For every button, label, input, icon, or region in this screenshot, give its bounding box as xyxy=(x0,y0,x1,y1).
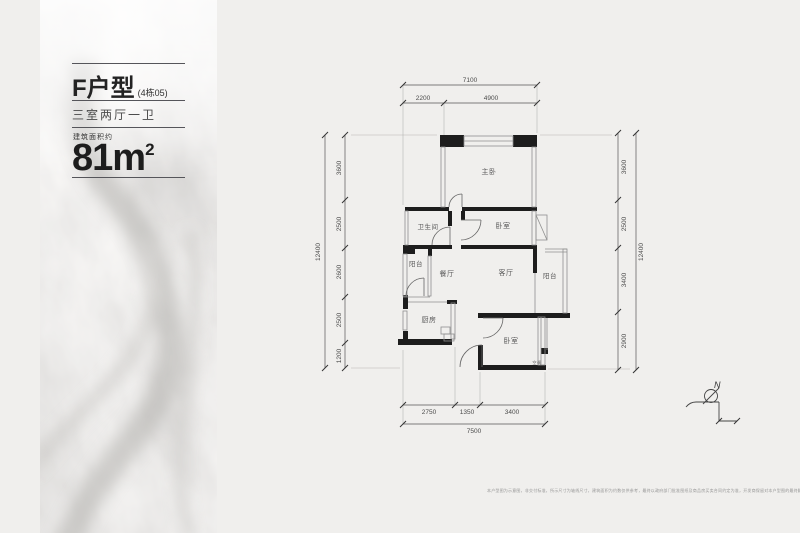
room-label-master-bedroom: 主卧 xyxy=(482,167,497,176)
dim-top-seg1: 2200 xyxy=(416,95,431,102)
room-label-living: 客厅 xyxy=(499,268,514,277)
room-label-bedroom-bottom: 卧室 xyxy=(504,336,519,345)
disclaimer-text: 本户型图为示意图，非交付标准，所示尺寸为轴线尺寸，建筑面积为约数仅供参考，最终以… xyxy=(487,488,787,494)
dim-right-seg3: 3400 xyxy=(621,272,628,287)
room-label-balcony-left: 阳台 xyxy=(409,259,423,268)
dim-top-overall: 7100 xyxy=(463,77,478,84)
dim-left-seg2: 2500 xyxy=(336,216,343,231)
room-label-bedroom-middle: 卧室 xyxy=(496,221,511,230)
dimension-ticks xyxy=(322,82,639,427)
divider-line xyxy=(72,127,185,128)
dim-right-overall: 12400 xyxy=(638,243,645,261)
area-number: 81 xyxy=(72,137,112,179)
dim-left-overall: 12400 xyxy=(315,243,322,261)
room-label-ac: 空调 xyxy=(533,359,542,365)
dim-right-seg2: 2500 xyxy=(621,216,628,231)
dim-top-seg2: 4900 xyxy=(484,95,499,102)
dim-left-seg3: 2600 xyxy=(336,264,343,279)
dim-bottom-overall: 7500 xyxy=(467,428,482,435)
divider-line xyxy=(72,100,185,101)
floorplan-page: F户型(4栋05) 三室两厅一卫 建筑面积约 81m2 xyxy=(0,0,800,533)
room-label-bathroom: 卫生间 xyxy=(418,222,439,231)
north-label: N xyxy=(714,380,721,390)
dim-left-seg5: 1200 xyxy=(336,348,343,363)
divider-line xyxy=(72,63,185,64)
area-exponent: 2 xyxy=(145,140,154,159)
unit-layout: 三室两厅一卫 xyxy=(72,106,156,123)
unit-title-row: F户型(4栋05) xyxy=(72,68,168,103)
dim-bottom-seg1: 2750 xyxy=(422,409,437,416)
unit-title: F户型 xyxy=(72,75,135,102)
room-label-dining: 餐厅 xyxy=(440,269,455,278)
area-value: 81m2 xyxy=(72,139,155,177)
room-label-balcony-right: 阳台 xyxy=(543,271,557,280)
north-arrow: N xyxy=(686,380,740,424)
unit-code: (4栋05) xyxy=(138,88,168,98)
dim-bottom-seg3: 3400 xyxy=(505,409,520,416)
dim-right-seg4: 2900 xyxy=(621,333,628,348)
dim-bottom-seg2: 1350 xyxy=(460,409,475,416)
room-label-kitchen: 厨房 xyxy=(422,315,437,324)
dim-left-seg1: 3600 xyxy=(336,160,343,175)
divider-line xyxy=(72,177,185,178)
dim-left-seg4: 2500 xyxy=(336,312,343,327)
area-unit: m xyxy=(112,137,145,179)
dim-right-seg1: 3600 xyxy=(621,159,628,174)
